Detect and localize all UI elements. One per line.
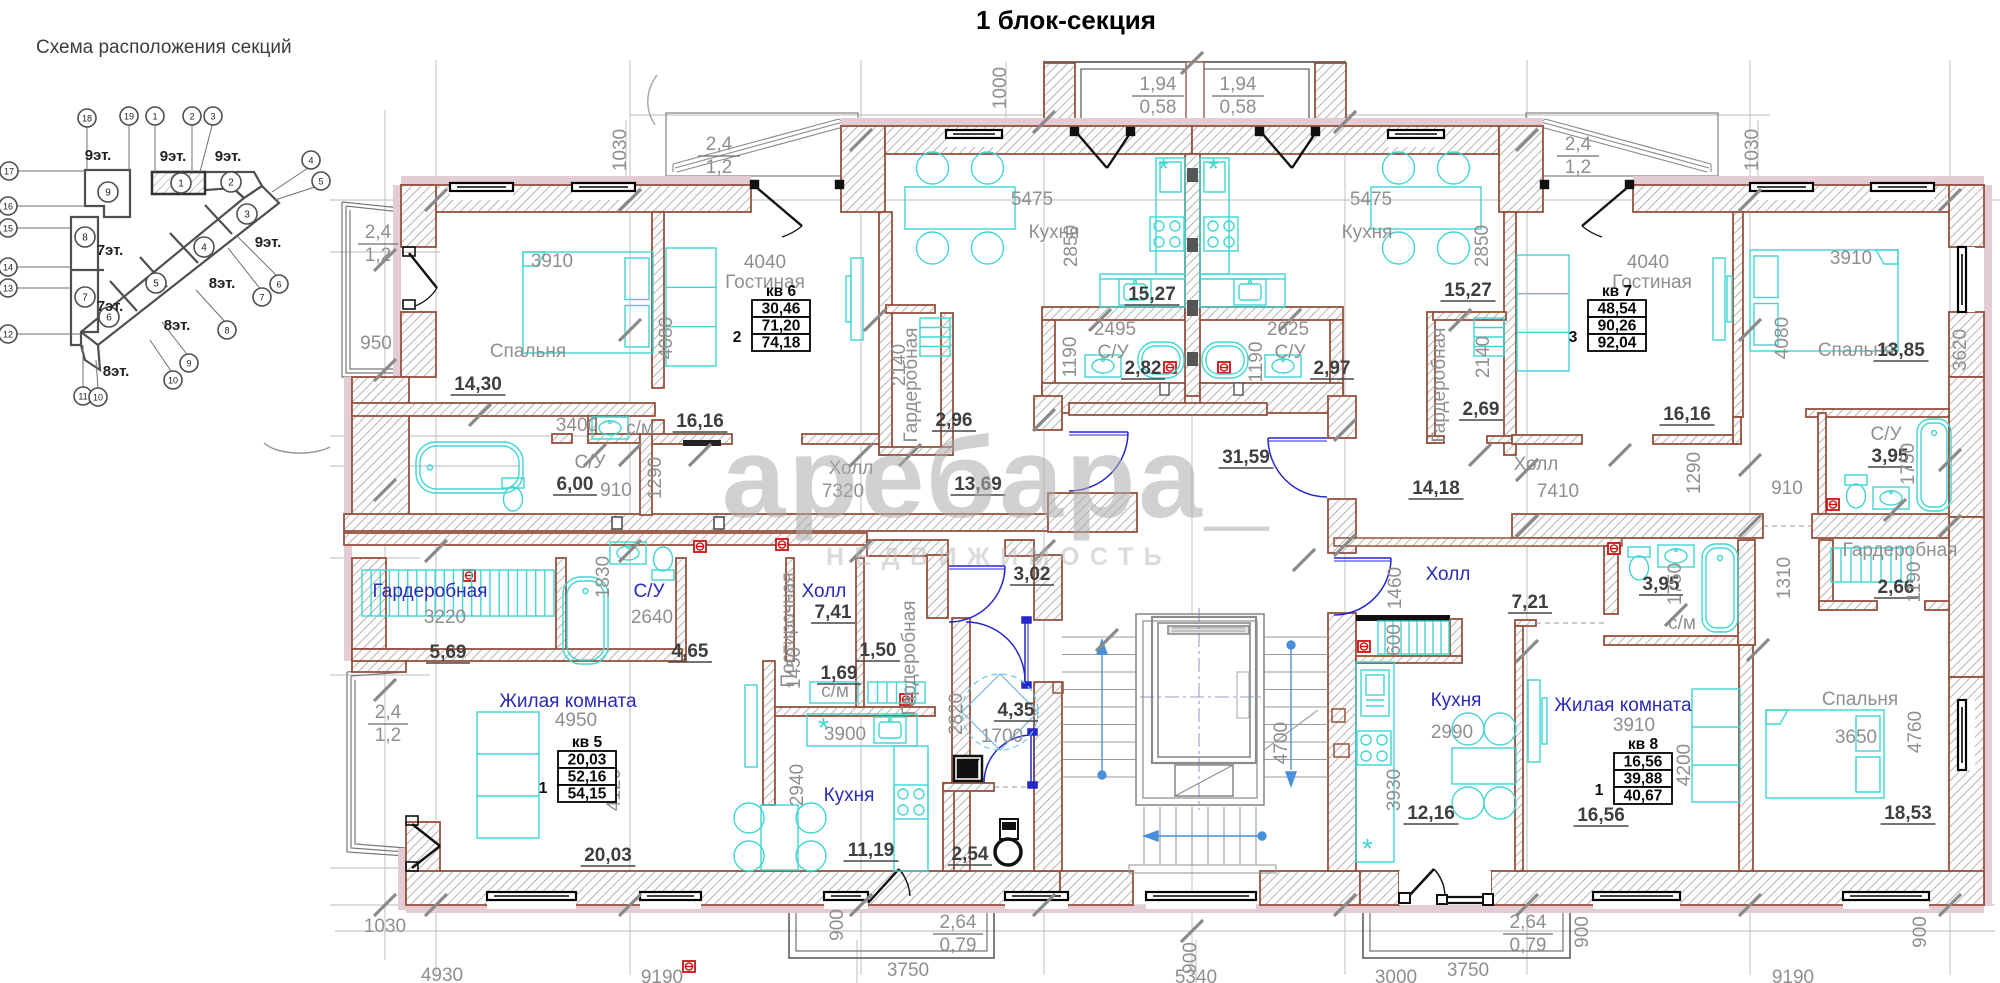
svg-text:3900: 3900 (824, 724, 866, 745)
svg-text:1700: 1700 (981, 726, 1023, 747)
svg-text:3000: 3000 (1375, 967, 1417, 983)
svg-text:0,79: 0,79 (940, 935, 977, 956)
svg-text:15: 15 (3, 224, 13, 234)
svg-text:18,53: 18,53 (1884, 803, 1932, 824)
svg-text:2,54: 2,54 (952, 844, 989, 865)
svg-text:900: 900 (827, 909, 848, 941)
svg-text:1: 1 (178, 179, 184, 190)
svg-text:2,64: 2,64 (1510, 912, 1547, 933)
svg-text:9190: 9190 (641, 967, 683, 983)
svg-text:Жилая комната: Жилая комната (1554, 695, 1692, 716)
svg-text:4,65: 4,65 (672, 641, 709, 662)
svg-text:9эт.: 9эт. (215, 148, 242, 165)
svg-text:52,16: 52,16 (568, 769, 607, 786)
svg-text:кв 8: кв 8 (1628, 736, 1659, 753)
svg-text:1030: 1030 (1742, 129, 1763, 171)
svg-text:с/м: с/м (626, 418, 654, 439)
svg-text:6: 6 (276, 280, 281, 290)
svg-text:3750: 3750 (1447, 960, 1489, 981)
svg-text:92,04: 92,04 (1598, 335, 1637, 352)
svg-text:1290: 1290 (1684, 452, 1705, 494)
svg-text:*: * (1362, 833, 1373, 864)
svg-text:13: 13 (3, 284, 13, 294)
svg-text:2,4: 2,4 (365, 222, 392, 243)
svg-text:5475: 5475 (1350, 189, 1392, 210)
svg-text:48,54: 48,54 (1598, 301, 1637, 318)
svg-text:39,88: 39,88 (1624, 771, 1663, 788)
svg-text:аребара_: аребара_ (722, 415, 1271, 542)
svg-text:7эт.: 7эт. (97, 242, 124, 259)
svg-text:1030: 1030 (364, 916, 406, 937)
svg-text:12,16: 12,16 (1407, 803, 1455, 824)
svg-text:1,94: 1,94 (1140, 74, 1177, 95)
svg-text:с/м: с/м (1668, 613, 1696, 634)
svg-text:4080: 4080 (1772, 317, 1793, 359)
svg-text:2: 2 (189, 112, 194, 122)
svg-text:1,2: 1,2 (706, 157, 732, 178)
svg-text:3910: 3910 (1830, 248, 1872, 269)
svg-text:4,35: 4,35 (998, 700, 1035, 721)
svg-text:16,56: 16,56 (1577, 805, 1625, 826)
svg-text:3400: 3400 (556, 415, 598, 436)
svg-text:1030: 1030 (610, 129, 631, 171)
svg-text:7,21: 7,21 (1512, 592, 1549, 613)
svg-text:11: 11 (78, 392, 87, 402)
svg-text:16,56: 16,56 (1624, 754, 1663, 771)
svg-text:3910: 3910 (531, 251, 573, 272)
svg-text:1,2: 1,2 (375, 725, 401, 746)
svg-text:13,85: 13,85 (1877, 340, 1925, 361)
svg-text:9: 9 (186, 359, 191, 369)
svg-text:Холл: Холл (802, 581, 847, 602)
svg-text:2495: 2495 (1094, 319, 1136, 340)
svg-text:2,4: 2,4 (1565, 134, 1592, 155)
svg-text:910: 910 (600, 480, 632, 501)
svg-text:1190: 1190 (1246, 342, 1267, 383)
svg-text:950: 950 (360, 333, 392, 354)
svg-text:8: 8 (82, 233, 88, 244)
svg-text:6,00: 6,00 (557, 474, 594, 495)
svg-text:3: 3 (1569, 329, 1578, 346)
svg-text:Гардеробная: Гардеробная (1843, 540, 1958, 561)
svg-text:3650: 3650 (1835, 727, 1877, 748)
svg-text:40,67: 40,67 (1624, 788, 1663, 805)
svg-text:17: 17 (4, 167, 14, 177)
svg-text:8эт.: 8эт. (164, 317, 191, 334)
svg-text:2140: 2140 (1473, 336, 1494, 378)
svg-text:кв 5: кв 5 (572, 734, 603, 751)
svg-text:4760: 4760 (1905, 711, 1926, 753)
svg-text:1190: 1190 (1060, 337, 1081, 378)
svg-text:11,19: 11,19 (848, 840, 895, 861)
svg-text:12: 12 (3, 330, 13, 340)
svg-text:Спальня: Спальня (1822, 689, 1898, 710)
svg-text:Холл: Холл (1426, 564, 1471, 585)
svg-text:Кухня: Кухня (1342, 222, 1393, 243)
svg-text:Схема расположения секций: Схема расположения секций (36, 37, 292, 58)
svg-text:8: 8 (224, 326, 229, 336)
svg-text:2820: 2820 (946, 693, 967, 735)
svg-text:7: 7 (259, 293, 264, 303)
svg-text:600: 600 (1384, 624, 1405, 656)
svg-text:8эт.: 8эт. (103, 363, 130, 380)
svg-text:7,41: 7,41 (815, 602, 852, 623)
svg-text:2,4: 2,4 (706, 134, 733, 155)
svg-text:4: 4 (201, 243, 207, 254)
svg-text:4080: 4080 (656, 317, 677, 359)
svg-text:20,03: 20,03 (584, 845, 632, 866)
svg-text:2: 2 (228, 178, 234, 189)
svg-text:3220: 3220 (424, 607, 466, 628)
svg-text:14,18: 14,18 (1412, 478, 1460, 499)
svg-text:1,50: 1,50 (860, 640, 897, 661)
svg-text:1: 1 (152, 112, 157, 122)
svg-text:Кухня: Кухня (1431, 690, 1482, 711)
svg-text:9: 9 (105, 188, 111, 199)
svg-text:16,16: 16,16 (676, 411, 724, 432)
svg-text:14,30: 14,30 (454, 374, 502, 395)
svg-text:4040: 4040 (1627, 252, 1669, 273)
svg-text:Гардеробная: Гардеробная (373, 581, 488, 602)
svg-text:1190: 1190 (1904, 562, 1925, 603)
svg-text:Жилая комната: Жилая комната (499, 691, 637, 712)
svg-text:5340: 5340 (1175, 967, 1217, 983)
svg-text:2850: 2850 (1472, 225, 1493, 267)
svg-text:2990: 2990 (1431, 722, 1473, 743)
svg-text:9эт.: 9эт. (85, 147, 112, 164)
svg-text:9эт.: 9эт. (255, 234, 282, 251)
svg-text:4700: 4700 (1271, 722, 1292, 764)
svg-text:9эт.: 9эт. (160, 148, 187, 165)
svg-text:2,64: 2,64 (940, 912, 977, 933)
svg-text:7эт.: 7эт. (97, 298, 124, 315)
svg-text:0,79: 0,79 (1510, 935, 1547, 956)
svg-text:3930: 3930 (1384, 769, 1405, 811)
svg-text:3620: 3620 (1950, 329, 1971, 371)
svg-text:с/м: с/м (821, 681, 849, 702)
svg-text:2940: 2940 (787, 764, 808, 806)
svg-text:Постирочная: Постирочная (778, 572, 799, 687)
svg-text:4040: 4040 (744, 252, 786, 273)
svg-text:910: 910 (1771, 478, 1803, 499)
svg-text:18: 18 (82, 114, 92, 124)
svg-text:1 блок-секция: 1 блок-секция (976, 5, 1156, 35)
svg-text:1750: 1750 (1898, 443, 1919, 485)
svg-text:С/У: С/У (574, 452, 606, 473)
svg-text:900: 900 (1910, 916, 1931, 948)
svg-text:1,94: 1,94 (1220, 74, 1257, 95)
svg-text:НЕДВИЖИМОСТЬ: НЕДВИЖИМОСТЬ (826, 543, 1172, 571)
svg-text:7410: 7410 (1537, 481, 1579, 502)
svg-text:15,27: 15,27 (1128, 284, 1176, 305)
svg-text:20,03: 20,03 (568, 752, 607, 769)
svg-text:Гардеробная: Гардеробная (1429, 328, 1450, 443)
svg-text:19: 19 (124, 112, 134, 122)
svg-text:2,82: 2,82 (1125, 358, 1162, 379)
svg-text:Холл: Холл (1514, 454, 1559, 475)
svg-text:Гардеробная: Гардеробная (899, 601, 920, 716)
svg-text:14: 14 (3, 263, 13, 273)
svg-text:71,20: 71,20 (762, 318, 801, 335)
svg-text:16,16: 16,16 (1663, 404, 1711, 425)
svg-text:16: 16 (3, 202, 13, 212)
svg-text:10: 10 (168, 376, 178, 386)
svg-text:кв 6: кв 6 (766, 283, 797, 300)
svg-text:74,18: 74,18 (762, 335, 801, 352)
svg-text:0,58: 0,58 (1140, 97, 1177, 118)
svg-text:4930: 4930 (421, 965, 463, 983)
svg-text:3: 3 (210, 112, 215, 122)
svg-text:5: 5 (153, 279, 159, 290)
svg-text:Кухня: Кухня (824, 785, 875, 806)
svg-text:900: 900 (1572, 916, 1593, 948)
svg-text:9190: 9190 (1772, 967, 1814, 983)
svg-text:30,46: 30,46 (762, 301, 801, 318)
svg-text:10: 10 (93, 393, 103, 403)
svg-text:15,27: 15,27 (1444, 280, 1492, 301)
svg-text:1750: 1750 (1665, 563, 1686, 605)
svg-text:3: 3 (244, 210, 250, 221)
svg-text:2,4: 2,4 (375, 702, 402, 723)
svg-text:2850: 2850 (1061, 225, 1082, 267)
svg-text:3910: 3910 (1613, 715, 1655, 736)
svg-text:1310: 1310 (1774, 557, 1795, 599)
svg-text:1290: 1290 (645, 457, 666, 499)
svg-text:5,69: 5,69 (430, 642, 467, 663)
svg-text:1000: 1000 (990, 67, 1011, 109)
svg-text:4: 4 (308, 156, 313, 166)
svg-text:8эт.: 8эт. (209, 275, 236, 292)
svg-text:С/У: С/У (1274, 342, 1306, 363)
svg-text:3750: 3750 (887, 960, 929, 981)
svg-text:2640: 2640 (631, 607, 673, 628)
svg-text:1: 1 (539, 780, 548, 797)
svg-text:1460: 1460 (1385, 567, 1406, 609)
svg-text:С/У: С/У (1870, 424, 1902, 445)
svg-text:5475: 5475 (1011, 189, 1053, 210)
svg-text:кв 7: кв 7 (1602, 283, 1632, 300)
svg-text:0,58: 0,58 (1220, 97, 1257, 118)
svg-text:Спальня: Спальня (490, 341, 566, 362)
svg-text:4950: 4950 (555, 710, 597, 731)
svg-text:7: 7 (82, 293, 88, 304)
svg-text:4200: 4200 (1674, 744, 1695, 786)
svg-text:1,2: 1,2 (1565, 157, 1591, 178)
svg-text:С/У: С/У (633, 581, 665, 602)
svg-text:54,15: 54,15 (568, 786, 607, 803)
svg-text:2,97: 2,97 (1314, 358, 1351, 379)
svg-text:2: 2 (733, 329, 742, 346)
svg-text:1: 1 (1595, 782, 1604, 799)
svg-text:2,69: 2,69 (1463, 399, 1500, 420)
svg-text:1830: 1830 (593, 556, 614, 598)
svg-text:5: 5 (318, 177, 323, 187)
svg-text:90,26: 90,26 (1598, 318, 1637, 335)
